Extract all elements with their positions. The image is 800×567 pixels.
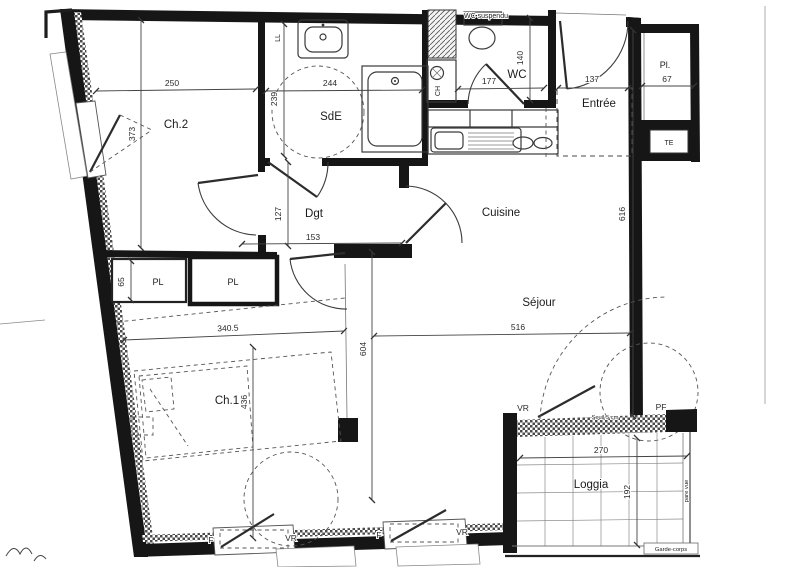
dim-loggia-width: 270 [594, 445, 608, 455]
dim-sde-height: 239 [269, 92, 279, 106]
label-wc: WC [507, 69, 526, 81]
entry-opening-outer-line [556, 13, 626, 15]
label-pl-entry: Pl. [660, 60, 671, 70]
dim-east-wall-height: 616 [617, 207, 627, 221]
dim-wc-height: 140 [515, 51, 525, 65]
sde-door-arc [317, 162, 328, 197]
margin-doodle-1 [6, 548, 32, 556]
dim-dgt-height: 127 [273, 207, 283, 221]
label-wc-suspendu: WC suspendu [464, 13, 508, 20]
dim-dgt-width: 153 [306, 232, 320, 242]
margin-doodle-2 [34, 555, 46, 561]
loggia [503, 297, 700, 556]
wall-wc-bottom-left [428, 100, 468, 108]
dim-sejour-width: 516 [511, 322, 525, 332]
wall-dgt-sejour [399, 158, 409, 188]
ch1-bed [139, 366, 253, 458]
sde-drain [320, 34, 326, 40]
loggia-left-wall [503, 413, 517, 553]
ch2-door-arc [198, 183, 256, 235]
dim-pl-entry-width: 67 [662, 74, 672, 84]
wall-dgt-bottom [334, 244, 412, 258]
ch1-bed-pillow [142, 377, 174, 412]
east-wall [628, 17, 643, 424]
dim-pl-depth: 65 [116, 277, 126, 287]
sde-faucet-dot [322, 24, 325, 27]
dim-wc-width: 177 [482, 76, 496, 86]
kitchen-drainer-lines [468, 133, 514, 149]
wall-sde-bottom-right [322, 158, 428, 166]
wall-block-ch1-sejour [338, 418, 358, 442]
south-sill-2 [396, 544, 480, 566]
label-cuisine: Cuisine [482, 207, 520, 219]
interior-walls [95, 10, 556, 442]
label-window1-vr: VR [285, 533, 297, 543]
dim-line-516 [374, 333, 630, 336]
shower-tray-inner [368, 72, 422, 146]
label-pf: PF [656, 402, 667, 412]
label-ch2: Ch.2 [164, 119, 188, 131]
dim-ch2-width: 250 [165, 78, 179, 88]
dim-sde-width: 244 [323, 78, 337, 88]
ch2-door-leaf [198, 175, 258, 183]
floor-plan-scan: Ch.2 SdE WC Entrée Cuisine Séjour Dgt Ch… [0, 0, 800, 567]
label-seuil: Seuil 5 cm [591, 415, 618, 421]
dim-center-height: 604 [358, 342, 368, 356]
wall-wc-entree [548, 10, 556, 108]
dim-ch1-height: 436 [239, 395, 249, 409]
dim-ch1-width: 340.5 [217, 323, 239, 334]
pf-door-leaf [538, 386, 595, 417]
shower-tray [362, 66, 428, 152]
label-sejour: Séjour [522, 297, 555, 309]
dim-line-250 [96, 89, 256, 91]
label-window1-f: F [208, 535, 213, 545]
wall-ch2-sde [258, 16, 265, 172]
label-pl-left: PL [152, 277, 163, 287]
dim-loggia-depth: 192 [622, 485, 632, 499]
entry-door-leaf [560, 21, 567, 89]
duct-shaft-hatched [428, 10, 456, 58]
dim-ch2-height: 373 [127, 127, 137, 141]
dim-line-244 [266, 90, 422, 91]
sde-door-leaf [268, 162, 317, 197]
ch1-bed-fold [150, 389, 188, 446]
label-pf-vr: VR [517, 403, 529, 413]
stove-burner-1 [513, 137, 533, 149]
pf-door-swing-arc [540, 297, 667, 419]
wc-bowl [469, 27, 495, 49]
label-te: TE [665, 140, 674, 147]
label-window2-f: F [376, 530, 381, 540]
label-dgt: Dgt [305, 208, 324, 220]
label-washer-ll: LL [275, 34, 282, 42]
label-pare-vue: pare vue [684, 480, 690, 503]
label-entree: Entrée [582, 98, 616, 110]
dim-entree-width: 137 [585, 74, 599, 84]
turning-circle-sde [272, 66, 364, 158]
kitchen-sink-bowl [435, 132, 463, 149]
label-sde: SdE [320, 111, 342, 123]
label-window2-vr: VR [456, 527, 468, 537]
south-sill-1 [276, 546, 356, 567]
label-ch1: Ch.1 [215, 395, 239, 407]
label-garde-corps: Garde-corps [655, 547, 687, 553]
ch1-door-arc [290, 259, 347, 309]
partition-line-ch1-sejour [345, 264, 347, 418]
label-pl-right: PL [227, 277, 238, 287]
left-margin-tick [0, 320, 45, 324]
stove-burner-2 [534, 138, 552, 149]
shower-drain-dot [394, 80, 396, 82]
label-boiler-ch: CH [435, 86, 442, 96]
loggia-right-block [666, 409, 697, 432]
label-loggia: Loggia [574, 479, 609, 491]
dgt-door-leaf [406, 203, 446, 243]
